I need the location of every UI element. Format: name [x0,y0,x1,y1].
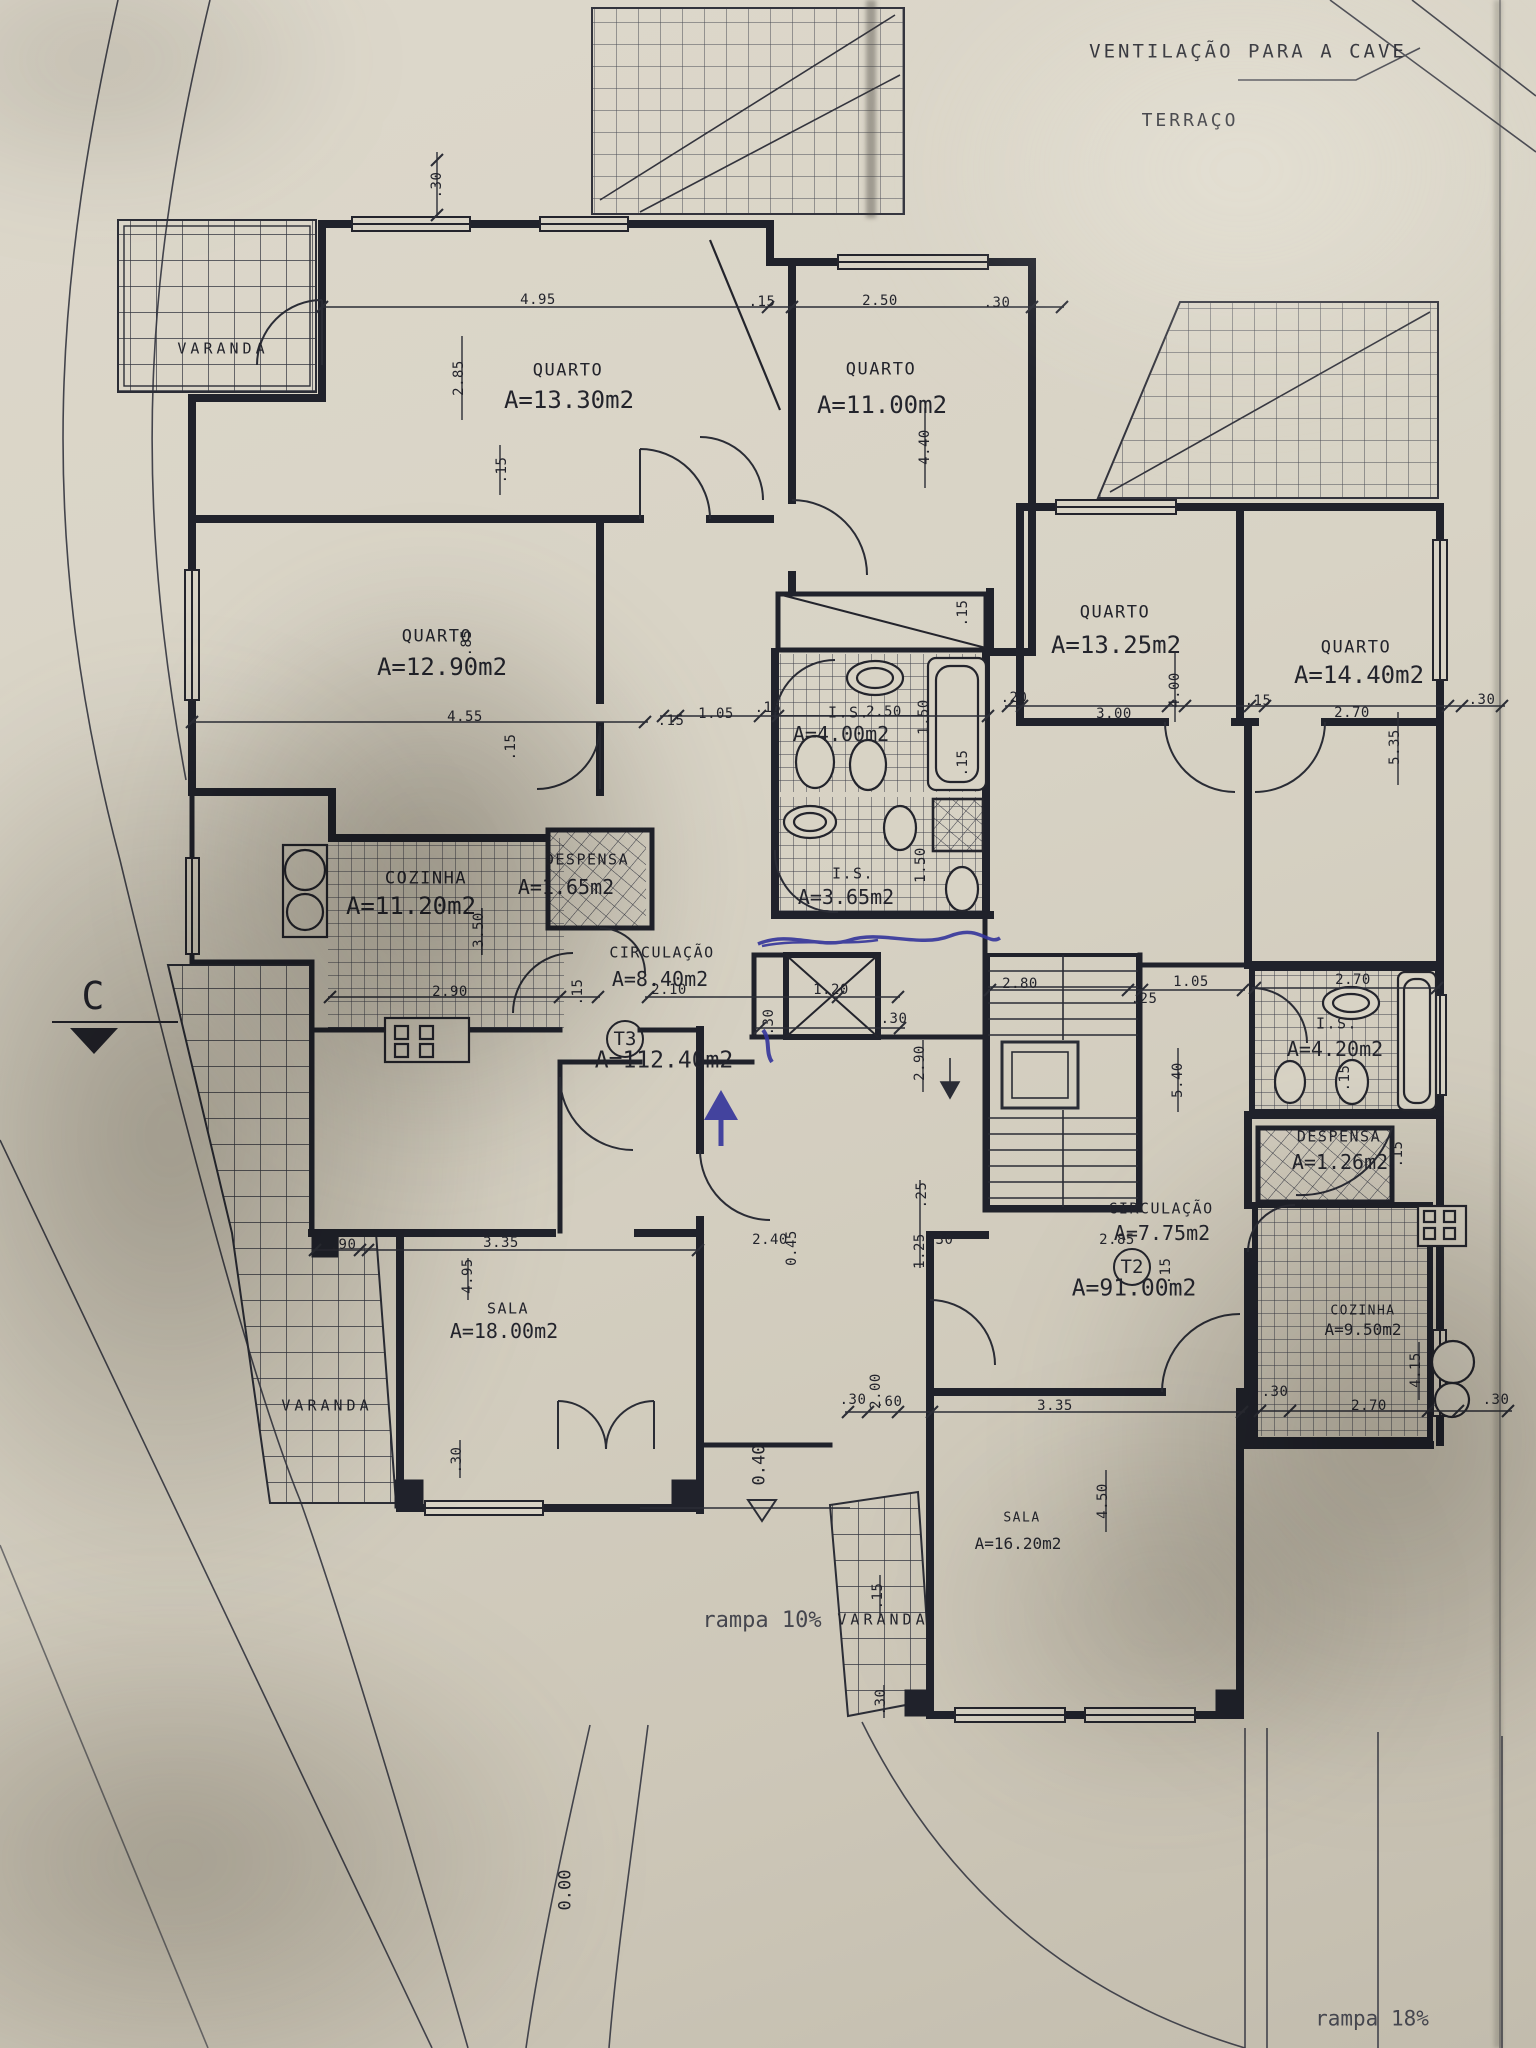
dimension-label: 2.85 [1099,1233,1135,1247]
room-name-quarto-13-25: QUARTO [1080,605,1150,622]
dimension-label: 4.95 [461,1258,475,1294]
unit-area-t3: A=112.40m2 [595,1050,733,1073]
room-name-cozinha-11-20: COZINHA [385,871,467,888]
ventilation-note: VENTILAÇÃO PARA A CAVE [1089,43,1407,62]
dimension-label: .15 [1338,1065,1352,1092]
room-name-varanda-bottom: VARANDA [837,1613,928,1628]
dimension-label: 3.50 [472,912,486,948]
dimension-label: 0.45 [785,1230,799,1266]
dimension-label: 5.35 [1388,729,1402,765]
dimension-label: 4.95 [520,293,556,307]
dimension-label: 1.50 [917,699,931,735]
room-name-varanda-top-left: VARANDA [177,342,268,357]
ramp-18-label: rampa 18% [1315,2009,1429,2030]
stairs [941,955,1138,1207]
dimension-label: 1.05 [1173,975,1209,989]
dimension-label: 3.35 [483,1236,519,1250]
dimension-label: .15 [956,600,970,627]
dimension-label: .30 [1469,693,1496,707]
dimension-label: 2.90 [432,985,468,999]
dimension-label: .30 [927,1233,954,1247]
room-name-is-3-65: I.S. [832,867,874,882]
dimension-label: 5.40 [1171,1062,1185,1098]
ramp-10-label: rampa 10% [702,1610,821,1632]
section-marker-line [52,1022,178,1054]
dimension-label: .15 [658,714,685,728]
dimension-label: .30 [450,1447,464,1474]
dimension-label: 3.00 [1096,707,1132,721]
street-level-mark: 0.00 [558,1870,575,1911]
terrace-label: TERRAÇO [1142,112,1239,130]
dimension-label: .25 [915,1182,929,1209]
dimension-label: .30 [840,1393,867,1407]
entry-level-mark: 0.40 [752,1445,769,1486]
dimension-label: 3.35 [1037,1399,1073,1413]
room-area-quarto-13-30: A=13.30m2 [504,388,634,412]
room-area-despensa-1-26: A=1.26m2 [1292,1152,1388,1172]
dimension-label: 4.55 [447,710,483,724]
dimension-label: 2.90 [913,1045,927,1081]
room-area-quarto-14-40: A=14.40m2 [1294,663,1424,687]
room-area-is-4-00: A=4.00m2 [793,724,889,744]
unit-area-t2: A=91.00m2 [1072,1278,1197,1301]
room-area-quarto-12-90: A=12.90m2 [377,655,507,679]
room-name-cozinha-9-50: COZINHA [1330,1305,1395,1318]
dimension-label: 2.70 [1334,706,1370,720]
room-name-is-4-00: I.S. [828,706,870,721]
dimension-label: 1.50 [914,847,928,883]
room-name-varanda-left: VARANDA [281,1399,372,1414]
dimension-label: 1.05 [698,707,734,721]
dimension-label: 2.70 [1351,1399,1387,1413]
dimension-label: .30 [984,296,1011,310]
dimension-label: 2.50 [866,705,902,719]
dimension-label: 4.40 [918,429,932,465]
dimension-label: 2.40 [752,1233,788,1247]
dimension-label: .15 [1245,694,1272,708]
dimension-label: .90 [330,1238,357,1252]
dimension-label: 2.50 [862,294,898,308]
dimension-label: 2.80 [1002,977,1038,991]
dimension-label: 4.50 [1096,1483,1110,1519]
room-name-despensa-1-26: DESPENSA [1297,1130,1381,1145]
terrace-hatch-areas [592,8,1438,498]
section-marker-c: C [82,977,105,1015]
dimension-label: 4.15 [1409,1352,1423,1388]
dimension-label: .15 [956,750,970,777]
room-area-despensa-1-65: A=1.65m2 [518,877,614,897]
floor-plan-photo: VENTILAÇÃO PARA A CAVE TERRAÇO C rampa 1… [0,0,1536,2048]
dimension-label: .15 [755,701,782,715]
room-name-sala-16-20: SALA [1003,1512,1040,1525]
room-area-sala-16-20: A=16.20m2 [975,1536,1062,1552]
room-name-quarto-13-30: QUARTO [533,363,603,380]
dimension-label: .30 [874,1689,888,1716]
dimension-label: .15 [871,1583,885,1610]
room-name-quarto-11-00: QUARTO [846,362,916,379]
dimension-label: 1.20 [813,983,849,997]
dimension-label: .30 [1483,1393,1510,1407]
dimension-label: 1.25 [913,1233,927,1269]
room-name-circulacao-8-40: CIRCULAÇÃO [609,946,714,961]
room-name-circulacao-7-75: CIRCULAÇÃO [1108,1202,1213,1217]
dimension-label: .15 [495,457,509,484]
room-name-despensa-1-65: DESPENSA [545,853,629,868]
dimension-label: .15 [571,979,585,1006]
dimension-label: .15 [749,295,776,309]
dimension-label: .15 [504,734,518,761]
room-area-is-4-20: A=4.20m2 [1287,1039,1383,1059]
room-area-quarto-13-25: A=13.25m2 [1051,633,1181,657]
room-area-cozinha-9-50: A=9.50m2 [1324,1322,1401,1338]
dimension-label: .25 [1131,992,1158,1006]
dimension-label: .30 [1262,1385,1289,1399]
dimension-label: .30 [762,1009,776,1036]
dimension-label: .30 [430,172,444,199]
room-area-quarto-11-00: A=11.00m2 [817,393,947,417]
dimension-label: .85 [460,630,474,657]
dimension-label: .60 [876,1395,903,1409]
dimension-label: 2.85 [452,360,466,396]
dimension-label: .20 [1001,691,1028,705]
room-area-is-3-65: A=3.65m2 [798,887,894,907]
room-area-sala-18-00: A=18.00m2 [450,1321,558,1341]
room-name-sala-18-00: SALA [487,1302,529,1317]
dimension-label: 2.10 [651,983,687,997]
dimension-label: .15 [1391,1141,1405,1168]
dimension-label: 4.00 [1168,672,1182,708]
room-area-cozinha-11-20: A=11.20m2 [346,894,476,918]
dimension-label: 2.70 [1335,973,1371,987]
room-name-quarto-14-40: QUARTO [1321,640,1391,657]
room-name-is-4-20: I.S. [1316,1017,1358,1032]
dimension-label: .30 [881,1012,908,1026]
